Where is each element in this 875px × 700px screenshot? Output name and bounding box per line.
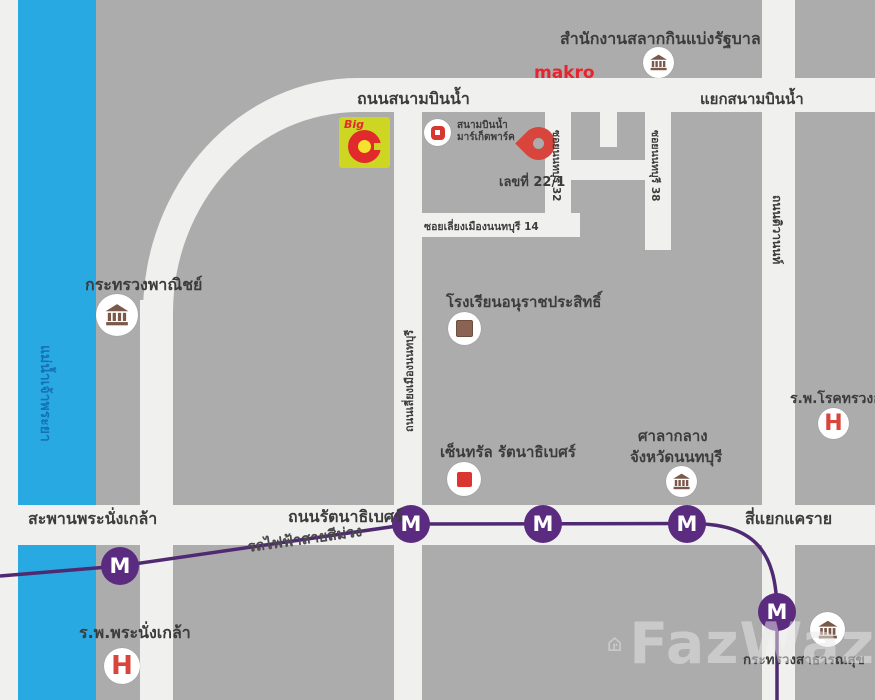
road-label-khae-rai: สี่แยกแคราย (745, 507, 832, 532)
government-building-icon (96, 294, 138, 336)
government-building-icon (666, 466, 697, 497)
school-label: โรงเรียนอนุราชประสิทธิ์ (446, 290, 601, 314)
metro-station-icon: M (524, 505, 562, 543)
city-hall-line2: จังหวัดนนทบุรี (630, 447, 722, 468)
station-letter: M (677, 512, 698, 536)
river-label: แม่น้ำเจ้าพระยา (34, 345, 56, 442)
road-label-soi-38: ซอยนนทบุรี 38 (647, 130, 664, 201)
big-c-logo: Big (339, 117, 390, 168)
market-park-label: สนามบินน้ำ มาร์เก็ตพาร์ค (457, 120, 515, 144)
road-label-tiwanon: ถนนติวานนท์ (767, 195, 786, 264)
map-canvas: ถนนสนามบินน้ำ แยกสนามบินน้ำ ซอยนนทบุรี 3… (0, 0, 875, 700)
health-ministry-label: กระทรวงสาธารณสุข (743, 648, 865, 670)
left-edge-road (0, 0, 18, 700)
commerce-ministry-label: กระทรวงพาณิชย์ (85, 273, 202, 298)
city-hall-label: ศาลากลาง จังหวัดนนทบุรี (630, 426, 722, 468)
pranangklao-hospital-label: ร.พ.พระนั่งเกล้า (79, 621, 191, 646)
big-c-ring-icon (348, 130, 381, 163)
station-letter: M (401, 512, 422, 536)
soi-notch-road (600, 110, 617, 147)
hospital-icon: H (818, 408, 849, 439)
market-park-line2: มาร์เก็ตพาร์ค (457, 132, 515, 144)
station-letter: M (767, 600, 788, 624)
market-park-icon (424, 119, 451, 146)
central-icon (447, 462, 481, 496)
chao-phraya-river (18, 0, 96, 700)
property-pin-label: เลขที่ 22/1 (499, 171, 565, 192)
metro-station-icon: M (101, 547, 139, 585)
station-letter: M (110, 554, 131, 578)
road-label-sanambinnam: ถนนสนามบินน้ำ (357, 87, 470, 112)
city-hall-line1: ศาลากลาง (630, 426, 722, 447)
central-label: เซ็นทรัล รัตนาธิเบศร์ (440, 440, 576, 464)
road-label-sanambinnam-junction: แยกสนามบินน้ำ (700, 87, 804, 111)
hospital-icon: H (104, 648, 140, 684)
government-building-icon (810, 612, 845, 647)
makro-label: makro (534, 63, 595, 83)
metro-station-icon: M (668, 505, 706, 543)
government-building-icon (643, 47, 674, 78)
road-label-soi-14: ซอยเลี่ยงเมืองนนทบุรี 14 (424, 218, 539, 235)
chest-hospital-label: ร.พ.โรคทรวงอก (790, 388, 875, 410)
station-letter: M (533, 512, 554, 536)
road-label-bridge: สะพานพระนั่งเกล้า (28, 507, 157, 532)
road-label-liang-mueang: ถนนเลี่ยงเมืองนนทบุรี (400, 330, 418, 432)
market-park-line1: สนามบินน้ำ (457, 120, 515, 132)
hospital-letter: H (824, 413, 842, 435)
big-c-word: Big (344, 118, 364, 131)
school-icon (448, 312, 481, 345)
hospital-letter: H (111, 653, 133, 679)
metro-station-icon: M (758, 593, 796, 631)
